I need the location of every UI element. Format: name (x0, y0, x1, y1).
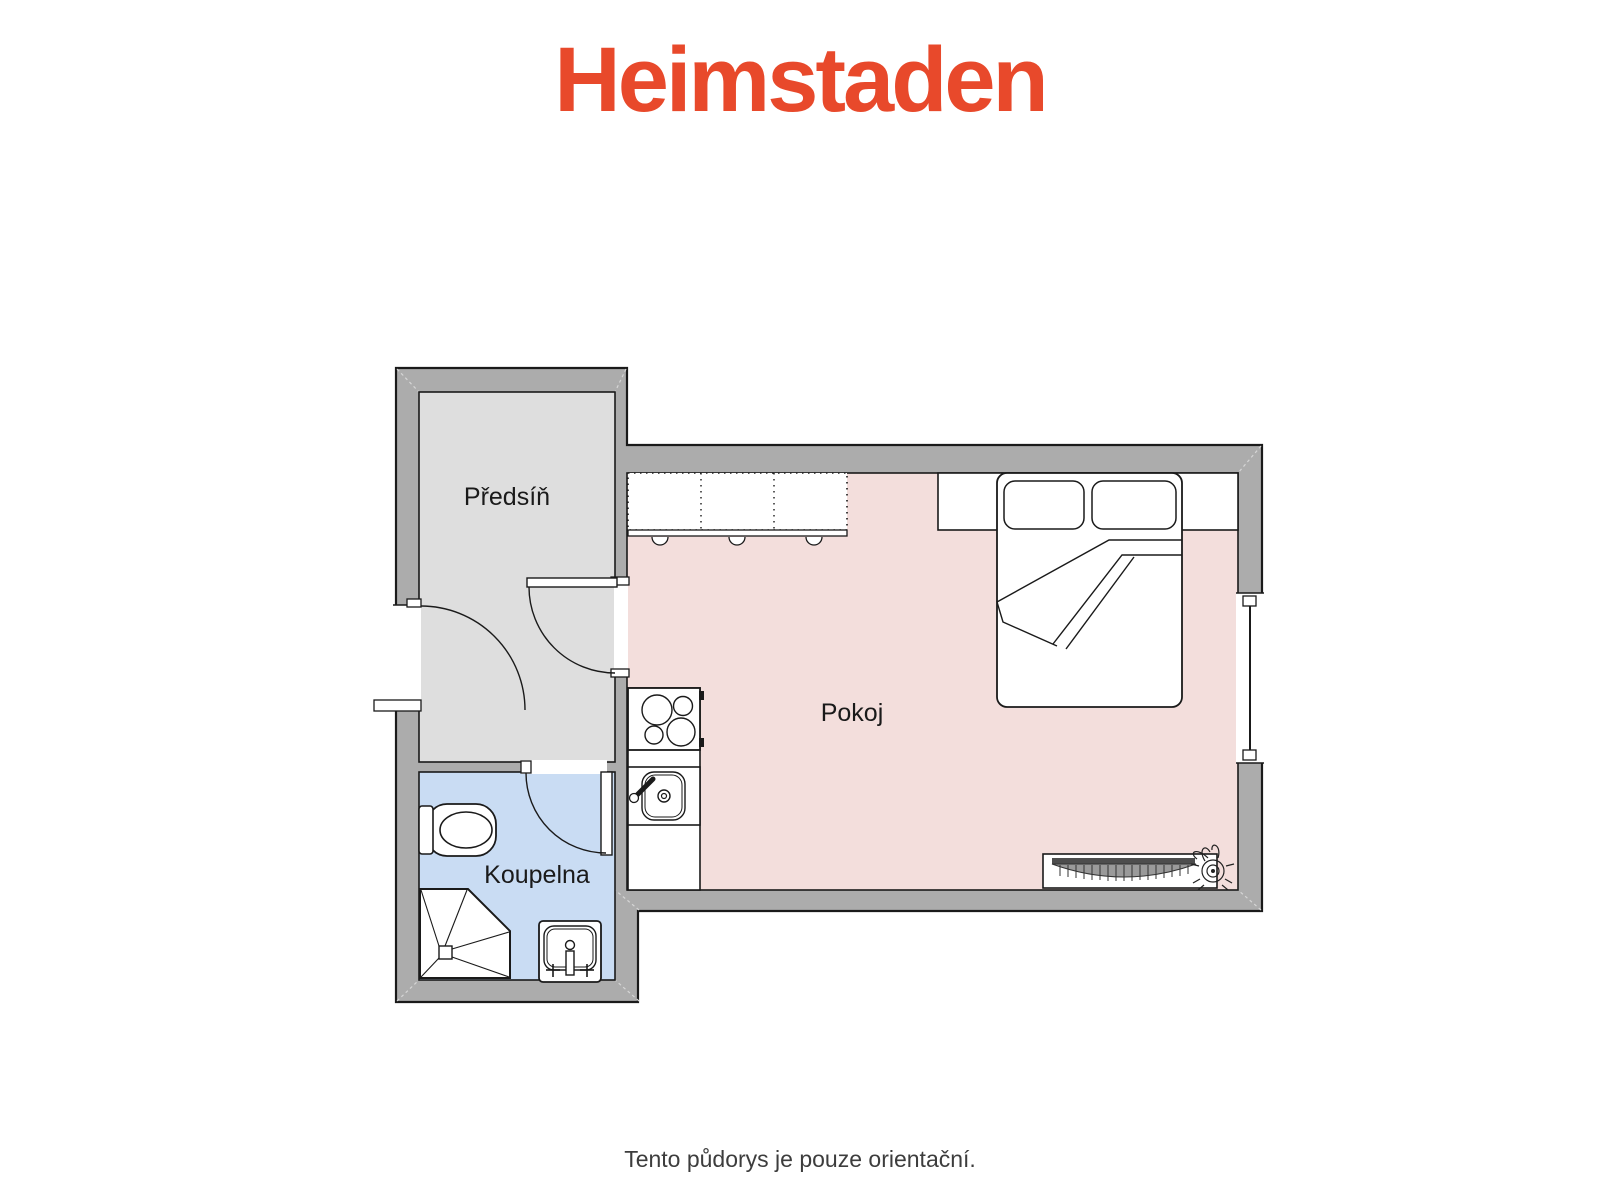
window (1236, 593, 1264, 763)
pillow-right (1092, 481, 1176, 529)
room-predsin-floor (419, 392, 615, 762)
page: Heimstaden (0, 0, 1600, 1200)
double-bed (997, 473, 1182, 707)
room-label-koupelna: Koupelna (427, 861, 647, 890)
washbasin (539, 921, 601, 982)
kitchen-sink (628, 767, 700, 825)
room-label-pokoj: Pokoj (742, 699, 962, 728)
floorplan (0, 0, 1600, 1200)
radiator (1043, 854, 1217, 888)
caption: Tento půdorys je pouze orientační. (0, 1146, 1600, 1173)
kitchen-upper-cabinets (628, 473, 847, 545)
cooktop (628, 688, 704, 750)
toilet (419, 804, 496, 856)
room-label-predsin: Předsíň (397, 483, 617, 512)
pillow-left (1004, 481, 1084, 529)
